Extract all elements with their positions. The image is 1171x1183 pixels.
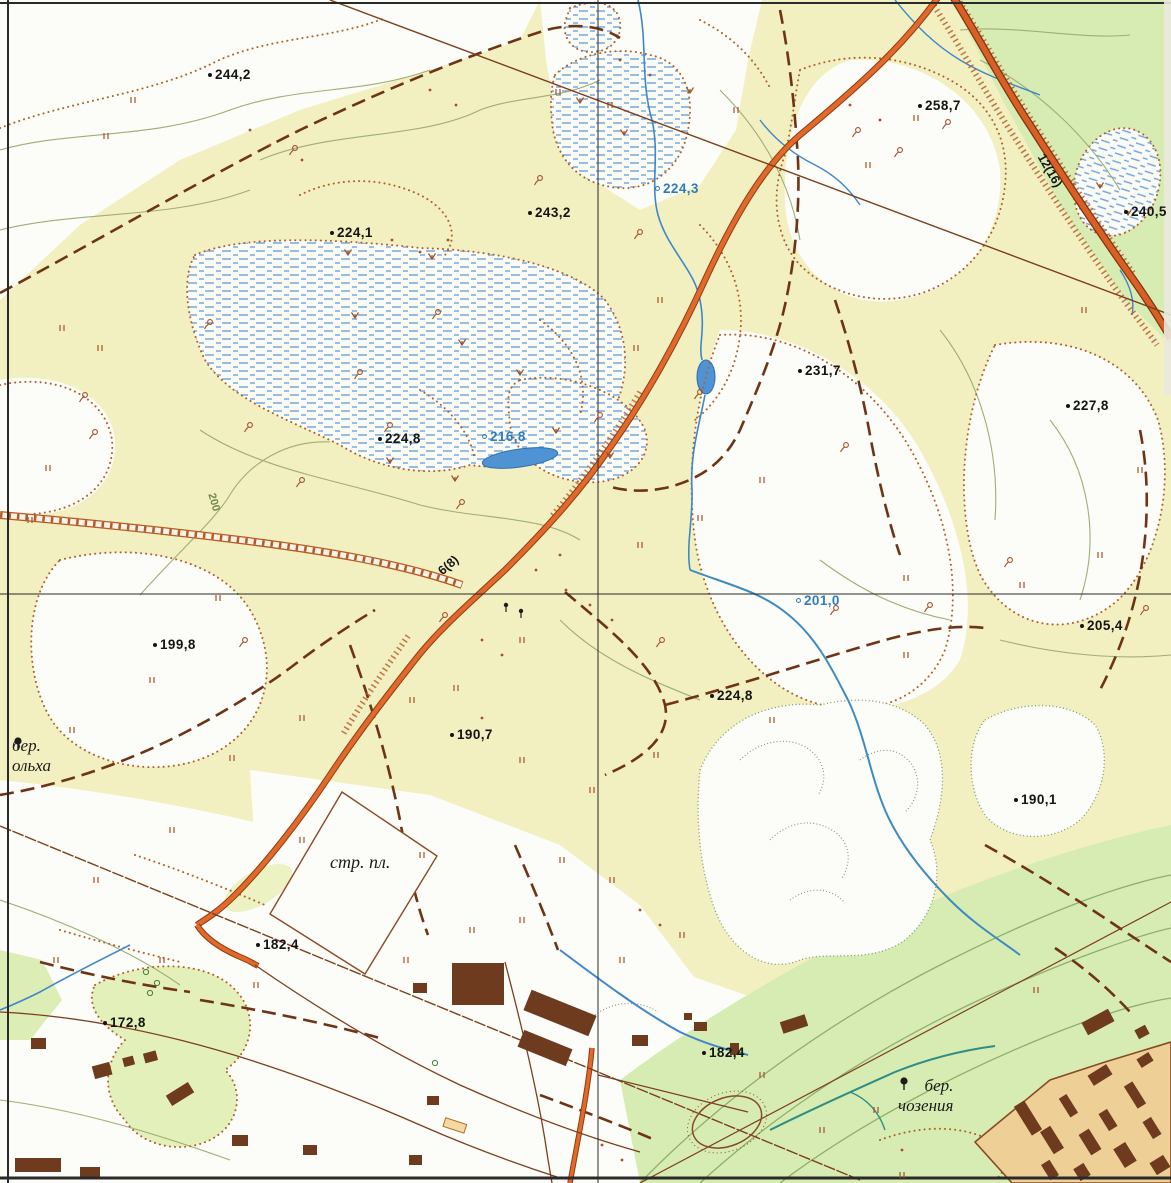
map-margin-strip: [1164, 0, 1171, 395]
topographic-map: стр. пл. бер. ольха бер. чозения 6(8) 12…: [0, 0, 1171, 1183]
map-canvas: [0, 0, 1171, 1183]
